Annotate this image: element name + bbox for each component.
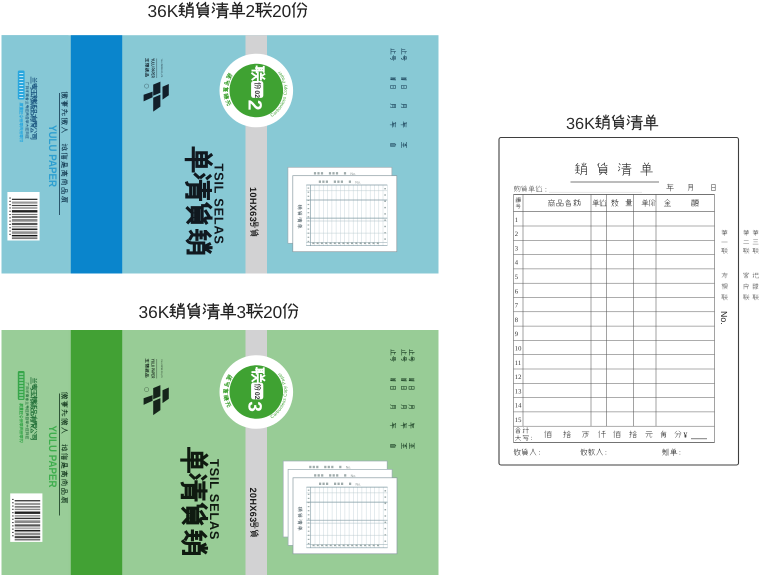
svg-text:20HX63:: 20HX63:: [248, 488, 258, 526]
svg-text::: :: [545, 186, 547, 193]
svg-text:12: 12: [515, 374, 522, 381]
svg-text:YULU PAPER: YULU PAPER: [46, 426, 58, 488]
svg-text:20: 20: [272, 1, 291, 21]
svg-text:TSIL SELAS: TSIL SELAS: [207, 459, 222, 540]
svg-text:02: 02: [253, 90, 260, 98]
svg-text:10HX63:: 10HX63:: [248, 187, 258, 225]
svg-text:13: 13: [515, 388, 522, 395]
svg-text::: :: [679, 449, 681, 456]
svg-text:No.: No.: [719, 311, 729, 325]
svg-text:20: 20: [263, 302, 282, 322]
svg-text:YULU PAPER CO.,LTD: YULU PAPER CO.,LTD: [160, 59, 163, 78]
svg-text:2: 2: [244, 100, 265, 111]
svg-text:11: 11: [515, 360, 521, 367]
svg-text:36K: 36K: [566, 115, 595, 133]
svg-text:10: 10: [515, 346, 522, 353]
svg-text:14: 14: [515, 403, 522, 410]
svg-text:3: 3: [237, 302, 247, 322]
svg-text:TSIL SELAS: TSIL SELAS: [211, 164, 226, 245]
svg-text:YULU PAPER CO.,LTD: YULU PAPER CO.,LTD: [160, 359, 163, 378]
svg-text:02: 02: [253, 392, 260, 400]
svg-text:¥: ¥: [684, 430, 688, 439]
svg-text:YULU PAPER: YULU PAPER: [150, 58, 155, 78]
svg-text::: :: [539, 449, 541, 456]
svg-text:YULU PAPER: YULU PAPER: [46, 125, 58, 187]
svg-text:No.: No.: [350, 172, 356, 176]
svg-text:36K: 36K: [148, 1, 179, 21]
svg-text:YULU PAPER: YULU PAPER: [150, 359, 155, 379]
svg-text:2: 2: [515, 231, 518, 238]
svg-text:No.: No.: [355, 180, 361, 184]
svg-text:No.: No.: [346, 466, 352, 470]
svg-text:No.: No.: [351, 474, 357, 478]
svg-text:1: 1: [515, 217, 518, 224]
svg-text:2: 2: [246, 1, 256, 21]
svg-text:36K: 36K: [139, 302, 170, 322]
svg-text:No.: No.: [356, 482, 362, 486]
svg-text::: :: [605, 449, 607, 456]
svg-text:15: 15: [515, 417, 522, 424]
svg-text:3: 3: [244, 401, 265, 412]
